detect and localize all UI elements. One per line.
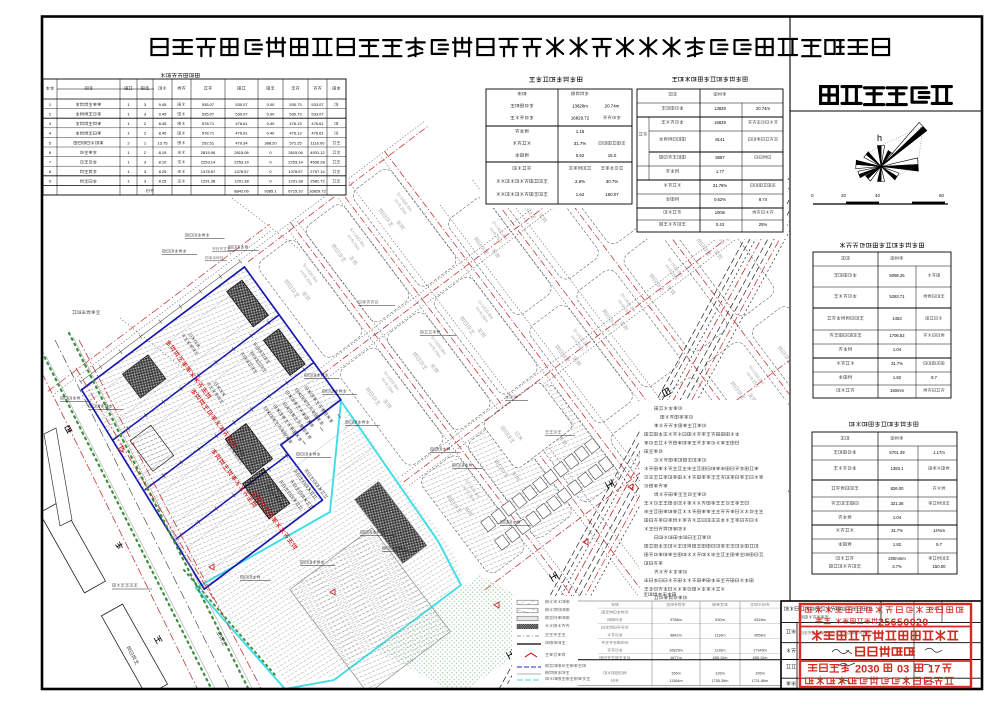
svg-text:31.76%: 31.76% bbox=[713, 183, 727, 188]
svg-text:0.40: 0.40 bbox=[267, 121, 276, 126]
svg-text:31.7%: 31.7% bbox=[891, 528, 903, 533]
svg-text:20: 20 bbox=[841, 193, 847, 198]
svg-text:826.00: 826.00 bbox=[891, 486, 904, 491]
svg-text:13828: 13828 bbox=[714, 106, 726, 111]
svg-text:1378.57: 1378.57 bbox=[288, 169, 303, 174]
svg-text:200mmm: 200mmm bbox=[888, 556, 906, 561]
svg-text:80: 80 bbox=[939, 193, 945, 198]
svg-text:0.00: 0.00 bbox=[267, 112, 276, 117]
svg-text:11364m: 11364m bbox=[669, 679, 682, 683]
svg-text:533.07: 533.07 bbox=[311, 112, 324, 117]
svg-text:156m: 156m bbox=[671, 671, 681, 675]
svg-text:20.74m: 20.74m bbox=[756, 106, 770, 111]
svg-text:0: 0 bbox=[811, 193, 814, 198]
svg-text:1.17m: 1.17m bbox=[933, 450, 945, 455]
svg-text:1755.38m: 1755.38m bbox=[712, 679, 729, 683]
svg-text:572.25: 572.25 bbox=[289, 140, 302, 145]
svg-text:479.34: 479.34 bbox=[235, 140, 248, 145]
svg-text:0.62%: 0.62% bbox=[714, 197, 726, 202]
svg-text:8842m: 8842m bbox=[670, 633, 682, 637]
svg-text:1.62: 1.62 bbox=[576, 192, 585, 197]
svg-text:8.45: 8.45 bbox=[159, 131, 168, 136]
svg-text:25650020: 25650020 bbox=[878, 617, 929, 629]
svg-text:476.13: 476.13 bbox=[289, 131, 302, 136]
svg-text:530.73: 530.73 bbox=[289, 112, 302, 117]
svg-text:4506.28: 4506.28 bbox=[310, 160, 325, 165]
svg-text:321.36: 321.36 bbox=[891, 501, 904, 506]
svg-text:2757.14: 2757.14 bbox=[310, 169, 325, 174]
svg-text:126m: 126m bbox=[715, 671, 725, 675]
svg-text:533.07: 533.07 bbox=[311, 102, 324, 107]
svg-text:2.8%: 2.8% bbox=[575, 179, 585, 184]
svg-text:13.75: 13.75 bbox=[157, 140, 168, 145]
svg-text:20.74m: 20.74m bbox=[605, 104, 620, 109]
svg-text:1291.38: 1291.38 bbox=[288, 179, 303, 184]
svg-text:530.73: 530.73 bbox=[289, 102, 302, 107]
svg-text:476.61: 476.61 bbox=[311, 121, 324, 126]
svg-text:2815.06: 2815.06 bbox=[201, 150, 216, 155]
svg-text:578.71: 578.71 bbox=[202, 131, 215, 136]
svg-text:0.00: 0.00 bbox=[267, 102, 276, 107]
svg-text:5283.71: 5283.71 bbox=[889, 294, 905, 299]
svg-text:8141: 8141 bbox=[715, 137, 725, 142]
svg-text:1378.57: 1378.57 bbox=[234, 169, 249, 174]
svg-text:9958m: 9958m bbox=[754, 633, 766, 637]
svg-text:40: 40 bbox=[875, 193, 881, 198]
svg-text:530m: 530m bbox=[715, 618, 725, 622]
svg-text:156m: 156m bbox=[755, 671, 765, 675]
svg-text:31.7%: 31.7% bbox=[891, 361, 903, 366]
svg-text:6715.10: 6715.10 bbox=[288, 188, 303, 193]
svg-text:6318m: 6318m bbox=[754, 618, 766, 622]
svg-text:16829: 16829 bbox=[714, 120, 726, 125]
svg-text:8.25: 8.25 bbox=[159, 169, 168, 174]
svg-text:1453: 1453 bbox=[892, 316, 902, 321]
svg-text:8.10: 8.10 bbox=[159, 160, 168, 165]
svg-text:31.7%: 31.7% bbox=[574, 141, 587, 146]
svg-text:1116.00: 1116.00 bbox=[311, 140, 326, 145]
svg-text:1291.38: 1291.38 bbox=[201, 179, 216, 184]
svg-text:292.51: 292.51 bbox=[202, 140, 215, 145]
svg-text:1116m: 1116m bbox=[714, 633, 725, 637]
svg-text:4931.12: 4931.12 bbox=[310, 150, 325, 155]
svg-text:9.45: 9.45 bbox=[159, 102, 168, 107]
svg-text:2253.14: 2253.14 bbox=[234, 160, 249, 165]
svg-text:1706.52: 1706.52 bbox=[889, 333, 905, 338]
svg-text:1.82: 1.82 bbox=[893, 542, 902, 547]
svg-text:530.07: 530.07 bbox=[235, 112, 248, 117]
svg-text:1116m: 1116m bbox=[714, 649, 725, 653]
svg-text:8.25: 8.25 bbox=[159, 179, 168, 184]
svg-text:16829m: 16829m bbox=[669, 649, 683, 653]
svg-text:14%m: 14%m bbox=[933, 528, 945, 533]
svg-text:2815.06: 2815.06 bbox=[234, 150, 249, 155]
svg-text:1291.38: 1291.38 bbox=[234, 179, 249, 184]
svg-text:476.61: 476.61 bbox=[235, 131, 248, 136]
svg-text:2253.14: 2253.14 bbox=[288, 160, 303, 165]
svg-text:13828m: 13828m bbox=[572, 104, 588, 109]
svg-text:03: 03 bbox=[897, 664, 909, 676]
svg-text:2030: 2030 bbox=[855, 664, 879, 676]
svg-text:5701.39: 5701.39 bbox=[889, 450, 905, 455]
svg-text:1.04: 1.04 bbox=[893, 515, 902, 520]
svg-text:535.07: 535.07 bbox=[202, 102, 215, 107]
svg-text:9.7: 9.7 bbox=[936, 542, 942, 547]
svg-text:2253.14: 2253.14 bbox=[201, 160, 216, 165]
svg-text:0.40: 0.40 bbox=[267, 131, 276, 136]
svg-text:h: h bbox=[877, 133, 882, 143]
svg-text:150mm: 150mm bbox=[890, 388, 904, 393]
svg-text:0.43: 0.43 bbox=[716, 222, 725, 227]
svg-text:530.07: 530.07 bbox=[235, 102, 248, 107]
svg-text:0.62: 0.62 bbox=[576, 153, 585, 158]
svg-text:476.61: 476.61 bbox=[235, 121, 248, 126]
svg-text:3.7%: 3.7% bbox=[892, 564, 902, 569]
svg-text:388.20: 388.20 bbox=[264, 140, 277, 145]
svg-text:2582.72: 2582.72 bbox=[310, 179, 325, 184]
svg-text:5788m: 5788m bbox=[670, 618, 682, 622]
svg-text:9.45: 9.45 bbox=[159, 112, 168, 117]
svg-text:5098.25: 5098.25 bbox=[889, 273, 905, 278]
svg-text:578.71: 578.71 bbox=[202, 121, 215, 126]
svg-text:25%: 25% bbox=[759, 222, 768, 227]
svg-text:15.0: 15.0 bbox=[608, 153, 617, 158]
svg-text:1383.1: 1383.1 bbox=[891, 466, 904, 471]
svg-text:150.00: 150.00 bbox=[933, 564, 946, 569]
svg-text:5687: 5687 bbox=[715, 155, 725, 160]
svg-text:8.74: 8.74 bbox=[759, 197, 768, 202]
svg-text:100m: 100m bbox=[715, 210, 726, 215]
svg-text:30.7%: 30.7% bbox=[606, 179, 619, 184]
svg-text:8.45: 8.45 bbox=[159, 121, 168, 126]
svg-text:9385.1: 9385.1 bbox=[264, 188, 277, 193]
svg-text:535.07: 535.07 bbox=[202, 112, 215, 117]
svg-text:16829.72: 16829.72 bbox=[309, 188, 326, 193]
svg-text:8.15: 8.15 bbox=[159, 150, 168, 155]
svg-text:1.16: 1.16 bbox=[576, 129, 585, 134]
svg-text:16829.72: 16829.72 bbox=[571, 116, 590, 121]
svg-text:1.04: 1.04 bbox=[893, 347, 902, 352]
svg-text:2815.06: 2815.06 bbox=[288, 150, 303, 155]
svg-text:1.77: 1.77 bbox=[716, 169, 725, 174]
svg-text:476.61: 476.61 bbox=[311, 131, 324, 136]
svg-text:150.07: 150.07 bbox=[605, 192, 619, 197]
svg-text:1711.86m: 1711.86m bbox=[752, 679, 769, 683]
svg-text:8842.06: 8842.06 bbox=[234, 188, 249, 193]
svg-text:1378.57: 1378.57 bbox=[201, 169, 216, 174]
svg-text:17: 17 bbox=[928, 664, 940, 676]
svg-text:1.82: 1.82 bbox=[893, 375, 902, 380]
svg-text:17945m: 17945m bbox=[753, 649, 767, 653]
svg-text:9.7: 9.7 bbox=[931, 375, 937, 380]
svg-text:476.13: 476.13 bbox=[289, 121, 302, 126]
